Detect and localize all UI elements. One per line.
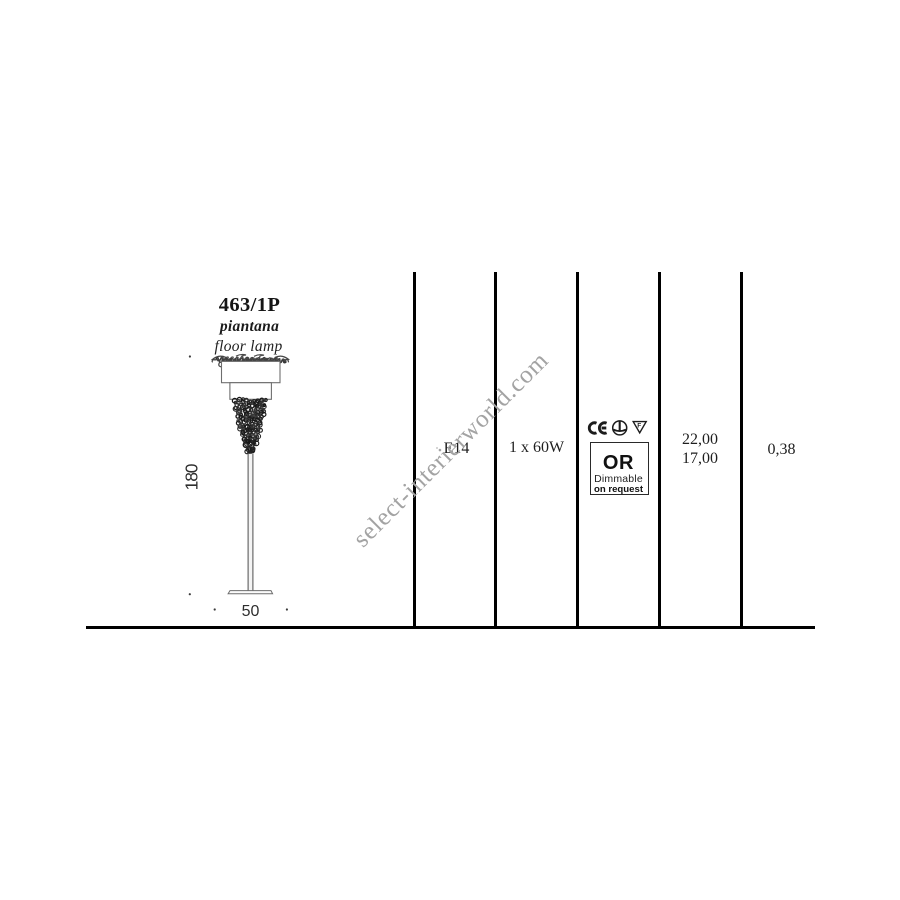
svg-text:F: F [637, 423, 641, 430]
